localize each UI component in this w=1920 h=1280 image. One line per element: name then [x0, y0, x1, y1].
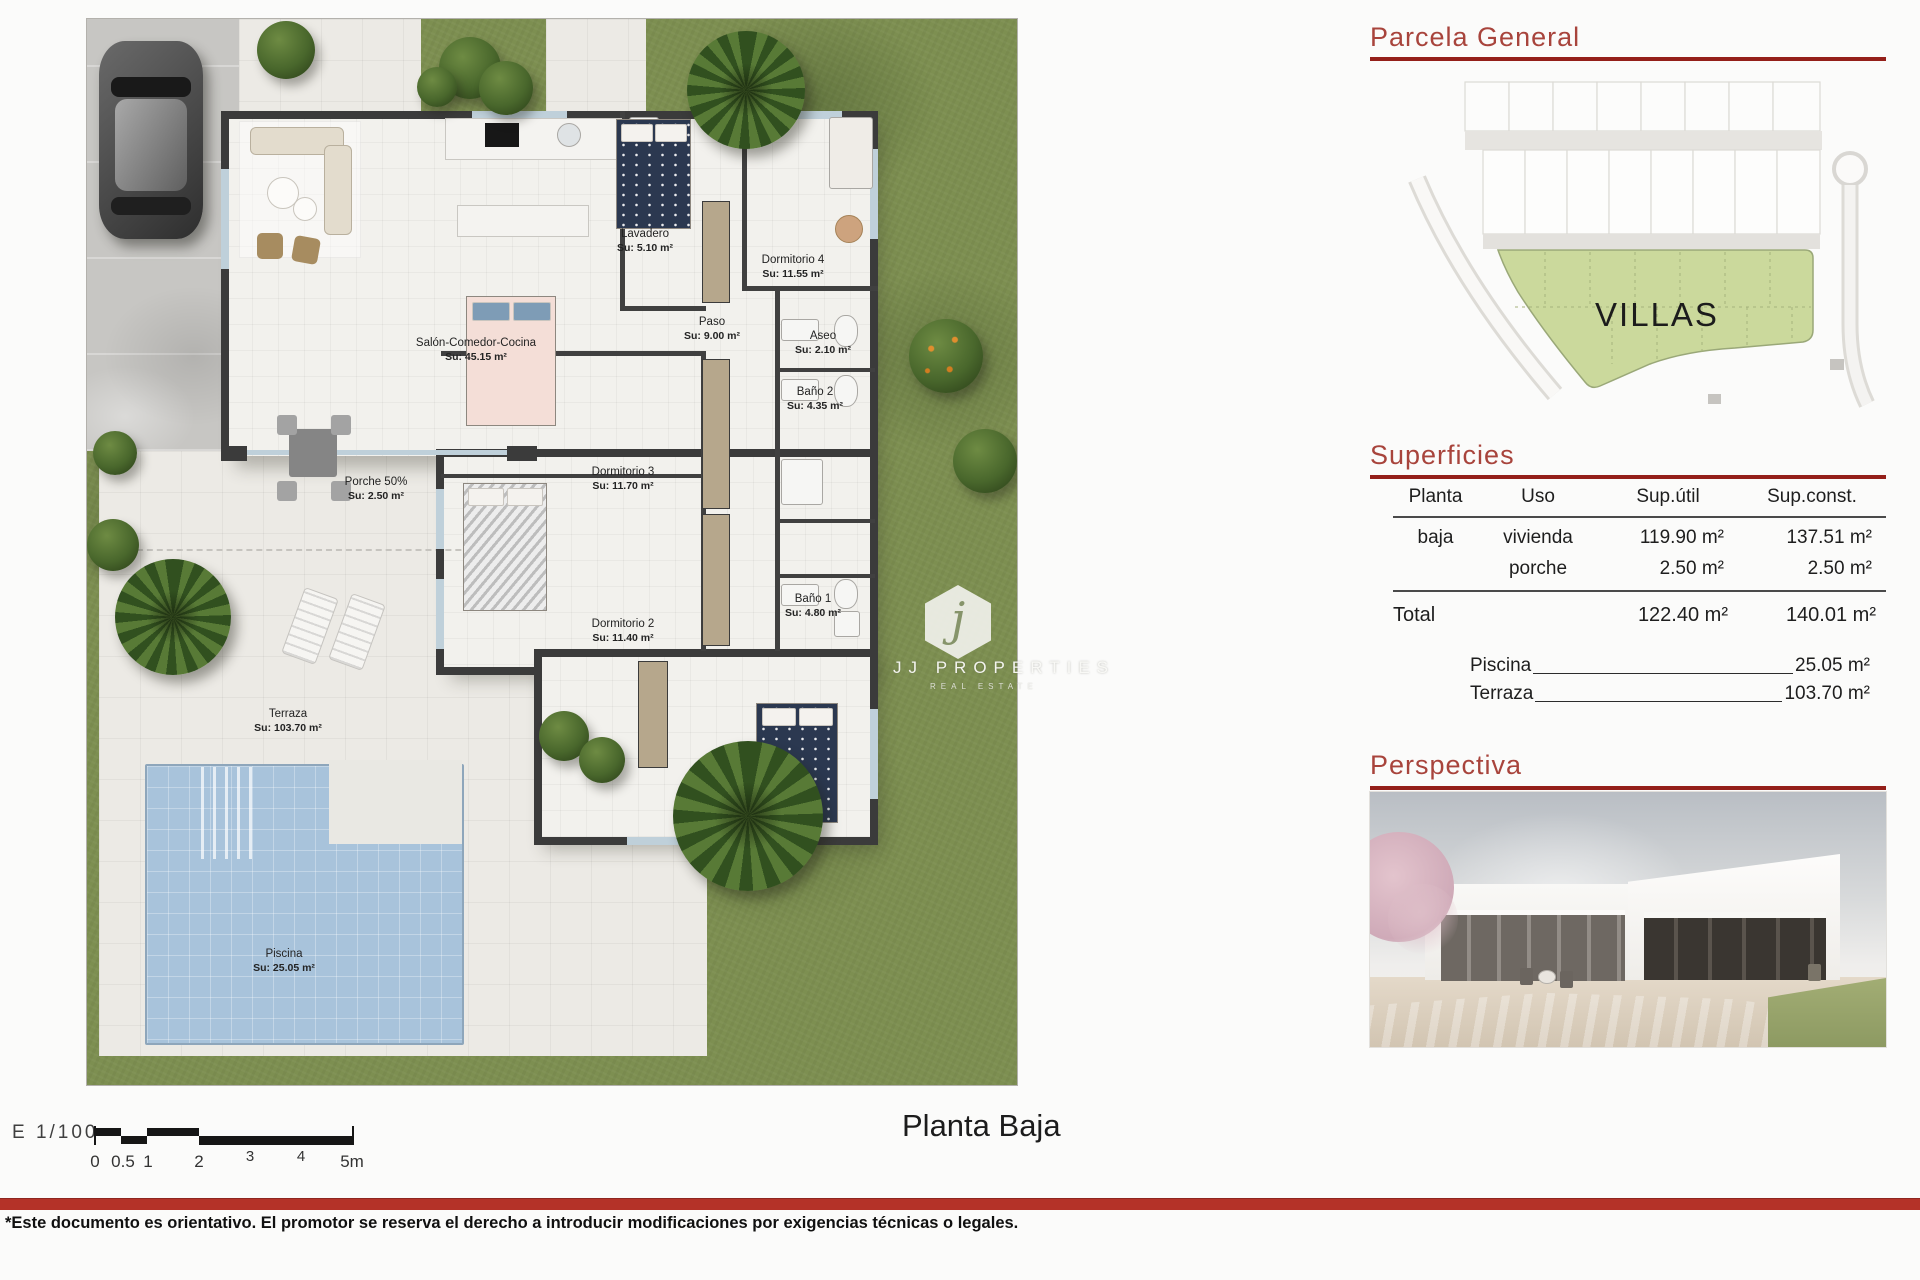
- render-chair: [1520, 968, 1533, 985]
- bush: [579, 737, 625, 783]
- scale-segment: [121, 1136, 147, 1144]
- red-divider-band: [0, 1198, 1920, 1210]
- col-planta: Planta: [1393, 486, 1478, 508]
- wall: [620, 306, 706, 311]
- heading-rule: [1370, 786, 1886, 790]
- kitchen-counter: [445, 118, 622, 160]
- table-row: porche 2.50 m² 2.50 m²: [1393, 549, 1886, 580]
- room-label-porche: Porche 50%Su: 2.50 m²: [345, 475, 408, 504]
- armchair: [257, 233, 283, 259]
- superficies-table: Planta Uso Sup.útil Sup.const. baja vivi…: [1393, 486, 1886, 627]
- superficies-header-row: Planta Uso Sup.útil Sup.const.: [1393, 486, 1886, 518]
- villas-zone-label: VILLAS: [1595, 296, 1719, 333]
- kitchen-island: [457, 205, 589, 237]
- col-uso: Uso: [1478, 486, 1598, 508]
- wall: [436, 667, 542, 675]
- table-total-row: Total 122.40 m² 140.01 m²: [1393, 592, 1886, 627]
- perspectiva-heading: Perspectiva: [1370, 750, 1522, 781]
- cooktop: [485, 123, 519, 147]
- kitchen-sink: [557, 123, 581, 147]
- window: [870, 709, 878, 799]
- plan-sheet: Salón-Comedor-CocinaSu: 45.15 m² Lavader…: [0, 0, 1920, 1280]
- scale-segment: [199, 1136, 352, 1145]
- bush: [479, 61, 533, 115]
- closet: [702, 514, 730, 646]
- tree: [257, 21, 315, 79]
- porch-post: [221, 446, 247, 461]
- scale-tick: 0.5: [111, 1152, 135, 1172]
- superficies-body: baja vivienda 119.90 m² 137.51 m² porche…: [1393, 518, 1886, 592]
- scale-tick: 1: [143, 1152, 152, 1172]
- room-label-dormitorio-2: Dormitorio 2Su: 11.40 m²: [592, 617, 655, 646]
- extras-list: Piscina 25.05 m² Terraza 103.70 m²: [1470, 655, 1870, 711]
- dotted-leader: [1535, 700, 1782, 702]
- window: [436, 579, 444, 649]
- paving-strip: [546, 19, 646, 119]
- window: [436, 489, 444, 549]
- render-villa-left-wing: [1425, 884, 1640, 980]
- sofa: [324, 145, 352, 235]
- scale-segment: [147, 1128, 199, 1136]
- cell-planta: [1393, 558, 1478, 580]
- wall: [441, 474, 703, 478]
- room-label-dormitorio-3: Dormitorio 3Su: 11.70 m²: [592, 465, 655, 494]
- closet: [702, 201, 730, 303]
- watermark-brand: JJ PROPERTIES: [893, 658, 1183, 678]
- room-label-aseo: AseoSu: 2.10 m²: [795, 329, 851, 358]
- shower-tray: [781, 459, 823, 505]
- porch-post: [507, 446, 537, 461]
- scale-tick: 3: [246, 1148, 254, 1165]
- outdoor-chair: [277, 415, 297, 435]
- total-label: Total: [1393, 604, 1478, 627]
- cell-const: 2.50 m²: [1738, 558, 1886, 580]
- heading-rule: [1370, 475, 1886, 479]
- list-item: Terraza 103.70 m²: [1470, 683, 1870, 705]
- outdoor-table: [289, 429, 337, 477]
- porch-glazing: [247, 450, 507, 455]
- cell-util: 119.90 m²: [1598, 527, 1738, 549]
- render-chair: [1560, 971, 1573, 988]
- room-label-lavadero: LavaderoSu: 5.10 m²: [617, 227, 673, 256]
- table-row: baja vivienda 119.90 m² 137.51 m²: [1393, 518, 1886, 549]
- total-const: 140.01 m²: [1738, 604, 1886, 627]
- render-pink-tree: [1388, 884, 1458, 954]
- superficies-heading: Superficies: [1370, 440, 1515, 471]
- wardrobe: [829, 117, 873, 189]
- extra-value: 103.70 m²: [1784, 683, 1870, 705]
- parcela-general-heading: Parcela General: [1370, 22, 1580, 53]
- col-sup-util: Sup.útil: [1598, 486, 1738, 508]
- list-item: Piscina 25.05 m²: [1470, 655, 1870, 677]
- closet: [702, 359, 730, 509]
- outdoor-chair: [331, 415, 351, 435]
- bed-dormitorio-4: [616, 119, 691, 229]
- render-glazing: [1644, 912, 1826, 984]
- room-label-bano-1: Baño 1Su: 4.80 m²: [785, 592, 841, 621]
- scale-tick-mark: [352, 1126, 354, 1145]
- wall: [775, 368, 875, 372]
- scale-tick: 5m: [340, 1152, 364, 1172]
- room-label-paso: PasoSu: 9.00 m²: [684, 315, 740, 344]
- car-rear-window: [111, 197, 191, 215]
- room-label-bano-2: Baño 2Su: 4.35 m²: [787, 385, 843, 414]
- palm-tree: [115, 559, 231, 675]
- cell-const: 137.51 m²: [1738, 527, 1886, 549]
- scale-label: E 1/100: [12, 1122, 99, 1144]
- bush: [87, 519, 139, 571]
- coffee-table: [293, 197, 317, 221]
- floor-plan: Salón-Comedor-CocinaSu: 45.15 m² Lavader…: [86, 18, 1018, 1086]
- closet: [638, 661, 668, 768]
- wall: [221, 111, 229, 461]
- perspective-render: [1370, 792, 1886, 1047]
- page-title: Planta Baja: [902, 1108, 1061, 1144]
- pool-deck-notch: [329, 760, 462, 844]
- cell-uso: porche: [1478, 558, 1598, 580]
- extra-value: 25.05 m²: [1795, 655, 1870, 677]
- scale-tick: 2: [194, 1152, 203, 1172]
- window: [221, 169, 229, 269]
- scale-tick: 0: [90, 1152, 99, 1172]
- bush: [953, 429, 1017, 493]
- outdoor-chair: [277, 481, 297, 501]
- extra-label: Piscina: [1470, 655, 1531, 677]
- bush: [93, 431, 137, 475]
- watermark-initial: j: [951, 592, 965, 646]
- car-windshield: [111, 77, 191, 97]
- cell-util: 2.50 m²: [1598, 558, 1738, 580]
- room-label-salon: Salón-Comedor-CocinaSu: 45.15 m²: [416, 336, 536, 365]
- palm-tree: [673, 741, 823, 891]
- wall: [775, 574, 875, 578]
- basin: [835, 215, 863, 243]
- render-table: [1538, 970, 1556, 984]
- site-plan: VILLAS: [1395, 64, 1920, 444]
- room-label-piscina: PiscinaSu: 25.05 m²: [253, 947, 315, 976]
- car-top-view: [99, 41, 203, 239]
- extra-label: Terraza: [1470, 683, 1533, 705]
- render-glazing: [1441, 910, 1625, 981]
- armchair: [291, 235, 321, 265]
- scale-tick: 4: [297, 1148, 305, 1165]
- car-roof: [115, 99, 187, 191]
- bed-dormitorio-2: [463, 483, 547, 611]
- room-label-dormitorio-4: Dormitorio 4Su: 11.55 m²: [762, 253, 825, 282]
- wall: [775, 286, 780, 651]
- flowering-bush: [909, 319, 983, 393]
- cell-uso: vivienda: [1478, 527, 1598, 549]
- palm-tree: [687, 31, 805, 149]
- total-util: 122.40 m²: [1598, 604, 1738, 627]
- bush: [417, 67, 457, 107]
- cell-planta: baja: [1393, 527, 1478, 549]
- pool-steps: [201, 767, 255, 859]
- heading-rule: [1370, 57, 1886, 61]
- wall: [775, 519, 875, 523]
- col-sup-const: Sup.const.: [1738, 486, 1886, 508]
- wall: [742, 286, 878, 291]
- render-chair: [1808, 964, 1821, 981]
- dotted-leader: [1533, 672, 1793, 674]
- scale-segment: [95, 1128, 121, 1136]
- disclaimer-text: *Este documento es orientativo. El promo…: [5, 1214, 1705, 1233]
- room-label-terraza: TerrazaSu: 103.70 m²: [254, 707, 322, 736]
- watermark-sub: REAL ESTATE: [930, 682, 1150, 691]
